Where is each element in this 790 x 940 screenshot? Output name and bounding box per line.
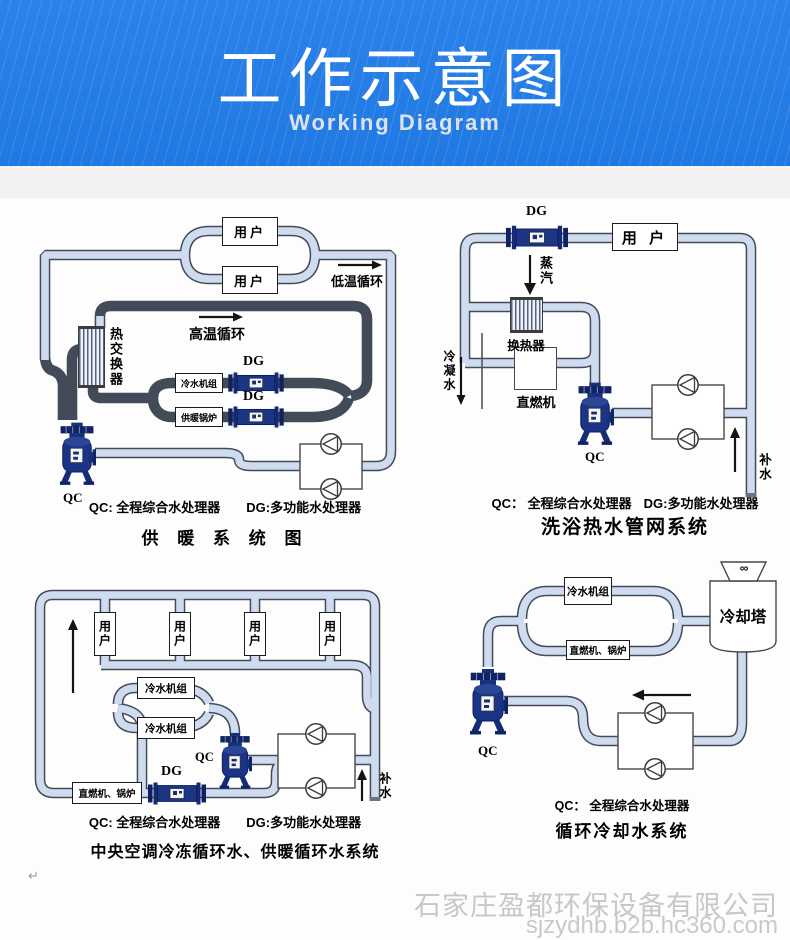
diagram-bathing-hot-water: DG 用 户 蒸汽 换热器 直燃机 冷凝水 QC 补水 QC： 全程综合水处理器…: [430, 195, 790, 555]
diagram-title: 洗浴热水管网系统: [445, 512, 790, 539]
makeup-water-label: 补水: [377, 772, 394, 808]
diagram-title: 循环冷却水系统: [447, 817, 790, 842]
legend: QC： 全程综合水处理器DG:多功能水处理器: [445, 493, 790, 512]
qc-label: QC: [478, 743, 498, 759]
diagram-title: 中央空调冷冻循环水、供暖循环水系统: [55, 838, 415, 862]
user-label: 用户: [247, 620, 264, 648]
low-temp-loop-label: 低温循环: [331, 271, 383, 290]
qc-label: QC: [585, 449, 605, 465]
pipes: [465, 238, 751, 494]
chiller-box: 冷水机组: [137, 677, 195, 699]
user-label: 用户: [234, 271, 266, 290]
diagram-cooling-water: 冷水机组 直燃机、锅炉 ∞ 冷却塔 QC QC： 全程综合水处理器 循环冷却水系…: [440, 555, 790, 860]
user-box: 用户: [169, 612, 191, 656]
dg-label: DG: [243, 354, 264, 370]
boiler-box: 直燃机、锅炉: [566, 640, 630, 660]
pump-icon: [645, 759, 665, 779]
diagram-heating-system: 用户 用户 低温循环 高温循环 热交换器 冷水机组 供暖锅炉 DG DG QC …: [15, 200, 405, 560]
dg-water-processor-icon: [148, 783, 206, 805]
dg-water-processor-icon: [228, 406, 283, 427]
dg-label: DG: [161, 764, 182, 780]
pump-icon: [321, 434, 341, 454]
high-temp-loop-label: 高温循环: [189, 324, 245, 344]
qc-water-processor-icon: [60, 423, 96, 485]
cooling-water-art: [440, 555, 790, 860]
pump-icon: [645, 703, 665, 723]
dg-label: DG: [526, 204, 547, 220]
legend-dg: DG:多功能水处理器: [246, 815, 361, 830]
qc-water-processor-icon: [470, 669, 508, 735]
dg-label: DG: [243, 389, 264, 405]
chiller-box: 冷水机组: [564, 577, 612, 605]
header-divider-band: [0, 166, 790, 198]
user-box: 用户: [222, 266, 278, 294]
legend-qc: QC: 全程综合水处理器: [89, 500, 220, 515]
flow-arrows: [632, 690, 691, 701]
boiler-label: 直燃机、锅炉: [569, 643, 626, 657]
heat-exchanger: [510, 297, 543, 333]
direct-fired-label: 直燃机: [492, 392, 580, 411]
boiler-label: 供暖锅炉: [181, 411, 217, 424]
user-label: 用户: [97, 620, 114, 648]
chiller-label: 冷水机组: [181, 377, 217, 390]
user-label: 用 户: [622, 227, 668, 248]
steam-label: 蒸汽: [536, 256, 555, 292]
diagram-central-ac: 用户 用户 用户 用户 冷水机组 冷水机组 直燃机、锅炉 DG QC 补水 QC…: [15, 560, 405, 870]
legend: QC: 全程综合水处理器DG:多功能水处理器: [30, 497, 420, 516]
page-subtitle: Working Diagram: [0, 110, 790, 136]
user-label: 用户: [234, 222, 266, 241]
user-box: 用户: [244, 612, 266, 656]
qc-water-processor-icon: [220, 733, 252, 789]
user-label: 用户: [322, 620, 339, 648]
legend: QC: 全程综合水处理器DG:多功能水处理器: [45, 812, 405, 831]
page-title: 工作示意图: [0, 28, 790, 120]
condensate-label: 冷凝水: [441, 350, 458, 408]
exchanger-label: 换热器: [494, 335, 558, 354]
page: 工作示意图 Working Diagram 用户 用户 低温循环 高温循环 热交…: [0, 0, 790, 940]
boiler-box: 供暖锅炉: [175, 407, 223, 427]
pump-icon: [306, 724, 326, 744]
legend: QC： 全程综合水处理器: [447, 795, 790, 814]
pump-icon: [678, 429, 698, 449]
qc-label: QC: [195, 750, 214, 765]
chiller-box: 冷水机组: [175, 373, 223, 393]
legend-qc: QC： 全程综合水处理器: [492, 496, 632, 511]
user-box: 用户: [319, 612, 341, 656]
chiller-label: 冷水机组: [145, 721, 187, 736]
legend-qc: QC： 全程综合水处理器: [555, 799, 690, 813]
makeup-water-label: 补水: [755, 453, 774, 489]
tower-fan-symbol: ∞: [734, 561, 754, 575]
heat-exchanger: [78, 326, 105, 388]
legend-dg: DG:多功能水处理器: [246, 500, 361, 515]
chiller-label: 冷水机组: [567, 584, 609, 599]
user-box: 用户: [222, 217, 278, 246]
chiller-box: 冷水机组: [137, 717, 195, 739]
watermark-url: sjzydhb.b2b.hc360.com: [526, 912, 778, 940]
dg-water-processor-icon: [506, 226, 568, 250]
pipes: [488, 591, 742, 741]
pump-icon: [306, 778, 326, 798]
boiler-box: 直燃机、锅炉: [72, 782, 142, 804]
user-label: 用户: [172, 620, 189, 648]
user-box: 用户: [94, 612, 116, 656]
chiller-label: 冷水机组: [145, 681, 187, 696]
qc-water-processor-icon: [578, 383, 614, 445]
stray-return-mark: ↵: [28, 868, 39, 884]
legend-dg: DG:多功能水处理器: [644, 496, 759, 511]
user-box: 用 户: [612, 223, 678, 251]
cooling-tower-label: 冷却塔: [713, 605, 773, 627]
diagram-title: 供 暖 系 统 图: [30, 524, 420, 549]
pump-icon: [678, 375, 698, 395]
header-banner: 工作示意图 Working Diagram: [0, 0, 790, 166]
legend-qc: QC: 全程综合水处理器: [89, 815, 220, 830]
boiler-label: 直燃机、锅炉: [78, 786, 135, 800]
heat-exchanger-label: 热交换器: [106, 327, 125, 405]
